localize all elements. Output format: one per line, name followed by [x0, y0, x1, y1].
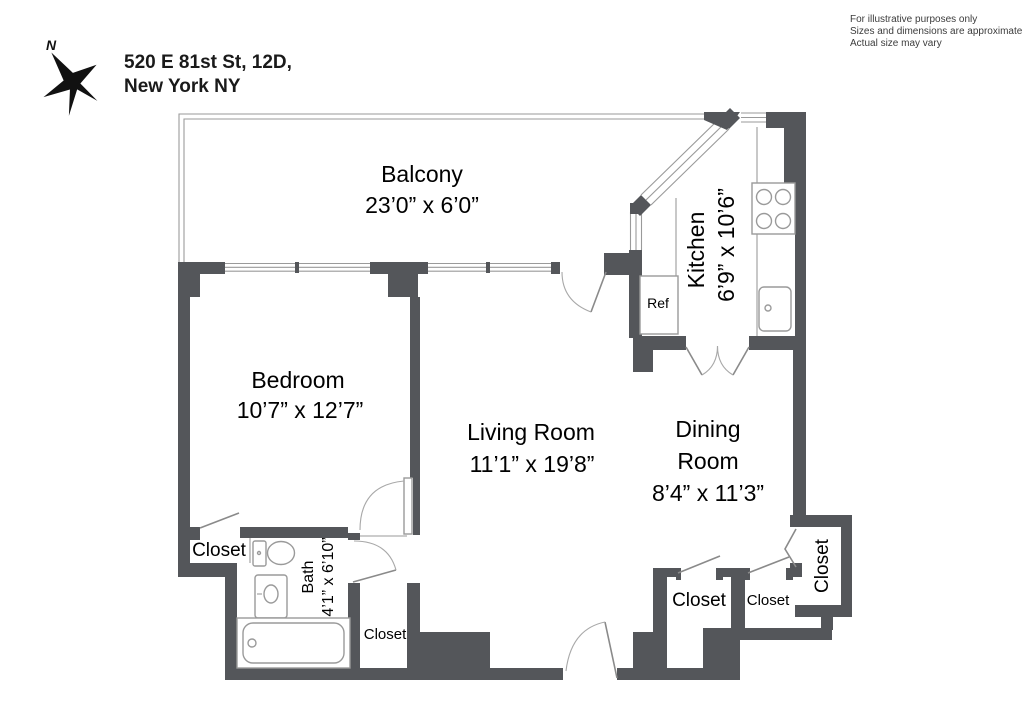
dining-closet-large-door: [678, 556, 720, 573]
dining-closet-small-label: Closet: [747, 592, 790, 609]
balcony-door: [562, 272, 606, 312]
bath-label: Bath: [300, 561, 317, 594]
window-mullion: [295, 262, 299, 273]
bedroom-door: [360, 478, 412, 534]
floor-plan: N 520 E 81st St, 12D, New York NY For il…: [0, 0, 1024, 723]
wall: [370, 262, 428, 274]
kitchen-sink: [759, 287, 791, 331]
wall: [633, 632, 653, 668]
wall: [723, 568, 745, 577]
wall: [551, 262, 560, 274]
bedroom-dims: 10’7” x 12’7”: [237, 397, 364, 423]
wall: [178, 262, 225, 274]
wall: [653, 568, 667, 668]
dining-room-dims: 8’4” x 11’3”: [652, 480, 764, 506]
wall: [731, 577, 745, 628]
wall: [407, 583, 420, 668]
wall: [178, 273, 200, 297]
living-room-label: Living Room: [467, 419, 595, 445]
bedroom-label: Bedroom: [251, 367, 344, 393]
wall: [178, 538, 190, 565]
window-kitchen-side: [631, 212, 642, 250]
disclaimer-block: For illustrative purposes only Sizes and…: [850, 14, 1023, 49]
disclaimer-line2: Sizes and dimensions are approximate: [850, 26, 1023, 37]
dining-room-label-1: Dining: [675, 416, 740, 442]
dining-room-label-2: Room: [677, 448, 738, 474]
wall: [413, 478, 420, 535]
compass-rose: N: [25, 35, 114, 125]
stove: [752, 183, 795, 234]
bedroom-closet-label: Closet: [192, 540, 247, 561]
stove-burner: [757, 190, 772, 205]
wall: [410, 297, 420, 478]
entry-closet-label: Closet: [812, 538, 833, 593]
wall: [225, 668, 563, 680]
entry-door: [566, 622, 617, 678]
bath-door: [353, 541, 396, 582]
door-jamb: [716, 568, 723, 580]
window-kitchen-top: [741, 113, 766, 122]
wall: [240, 527, 348, 538]
bathtub: [237, 618, 350, 668]
toilet: [253, 541, 295, 566]
wall: [795, 184, 806, 350]
wall: [795, 605, 852, 617]
hall-closet-label: Closet: [364, 626, 407, 643]
wall: [703, 628, 740, 680]
wall: [821, 617, 833, 630]
balcony-dims: 23’0” x 6’0”: [365, 192, 479, 218]
bath-sink: [255, 575, 287, 618]
ref-label: Ref: [647, 295, 669, 311]
wall: [178, 563, 237, 577]
dining-closet-small-door: [748, 557, 789, 573]
stove-burner: [776, 214, 791, 229]
kitchen-dims: 6’9” x 10’6”: [713, 188, 739, 302]
wall: [388, 274, 418, 297]
balcony-label: Balcony: [381, 161, 463, 187]
address-block: 520 E 81st St, 12D, New York NY: [124, 52, 292, 97]
wall: [420, 632, 490, 668]
wall: [841, 515, 852, 617]
kitchen-double-doors: [686, 346, 749, 375]
compass-star-icon: [25, 35, 114, 125]
bath-dims: 4’1” x 6’10”: [320, 537, 337, 616]
wall: [617, 668, 653, 680]
kitchen-label: Kitchen: [683, 212, 709, 289]
disclaimer-line3: Actual size may vary: [850, 38, 942, 49]
window-mullion: [486, 262, 490, 273]
disclaimer-line1: For illustrative purposes only: [850, 14, 977, 25]
wall: [653, 668, 703, 680]
wall: [740, 628, 832, 640]
room-labels: Balcony 23’0” x 6’0” Bedroom 10’7” x 12’…: [237, 161, 764, 617]
address-line2: New York NY: [124, 76, 241, 97]
wall: [225, 577, 237, 680]
bedroom-closet-door: [200, 513, 239, 528]
door-jamb: [745, 568, 750, 580]
wall: [178, 297, 190, 527]
wall: [348, 533, 360, 540]
door-jamb: [676, 568, 681, 580]
stove-burner: [776, 190, 791, 205]
compass-north-label: N: [46, 37, 57, 53]
wall: [793, 343, 806, 517]
wall: [633, 336, 653, 372]
wall: [653, 568, 676, 577]
entry-closet-bifold-door: [785, 529, 796, 567]
stove-burner: [757, 214, 772, 229]
dining-closet-large-label: Closet: [672, 590, 727, 611]
living-room-dims: 11’1” x 19’8”: [470, 451, 595, 477]
wall: [784, 112, 806, 184]
door-jamb: [786, 568, 793, 580]
address-line1: 520 E 81st St, 12D,: [124, 52, 292, 73]
